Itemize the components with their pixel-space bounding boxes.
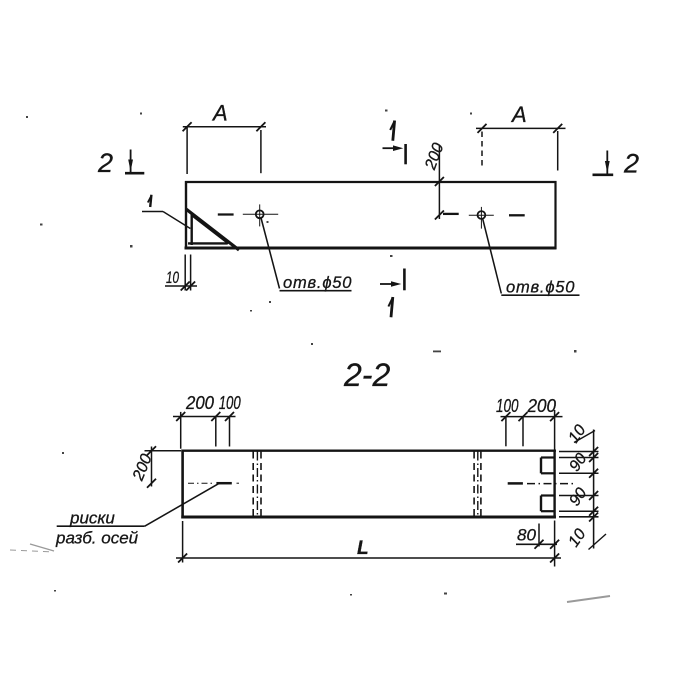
svg-text:2: 2 bbox=[623, 149, 639, 179]
svg-text:риски: риски bbox=[69, 509, 115, 528]
svg-text:A: A bbox=[510, 102, 527, 127]
svg-text:A: A bbox=[211, 101, 228, 126]
svg-text:100: 100 bbox=[496, 396, 519, 416]
svg-text:L: L bbox=[357, 538, 369, 559]
svg-text:отв.ϕ50: отв.ϕ50 bbox=[506, 279, 575, 297]
svg-text:10: 10 bbox=[166, 268, 179, 287]
svg-text:2-2: 2-2 bbox=[343, 357, 390, 393]
svg-text:2: 2 bbox=[97, 148, 113, 178]
svg-text:100: 100 bbox=[219, 393, 241, 413]
svg-text:200: 200 bbox=[185, 393, 214, 413]
svg-text:отв.ϕ50: отв.ϕ50 bbox=[283, 274, 352, 292]
svg-text:200: 200 bbox=[527, 396, 556, 416]
svg-text:80: 80 bbox=[517, 526, 537, 545]
svg-text:разб. осей: разб. осей bbox=[55, 529, 139, 548]
